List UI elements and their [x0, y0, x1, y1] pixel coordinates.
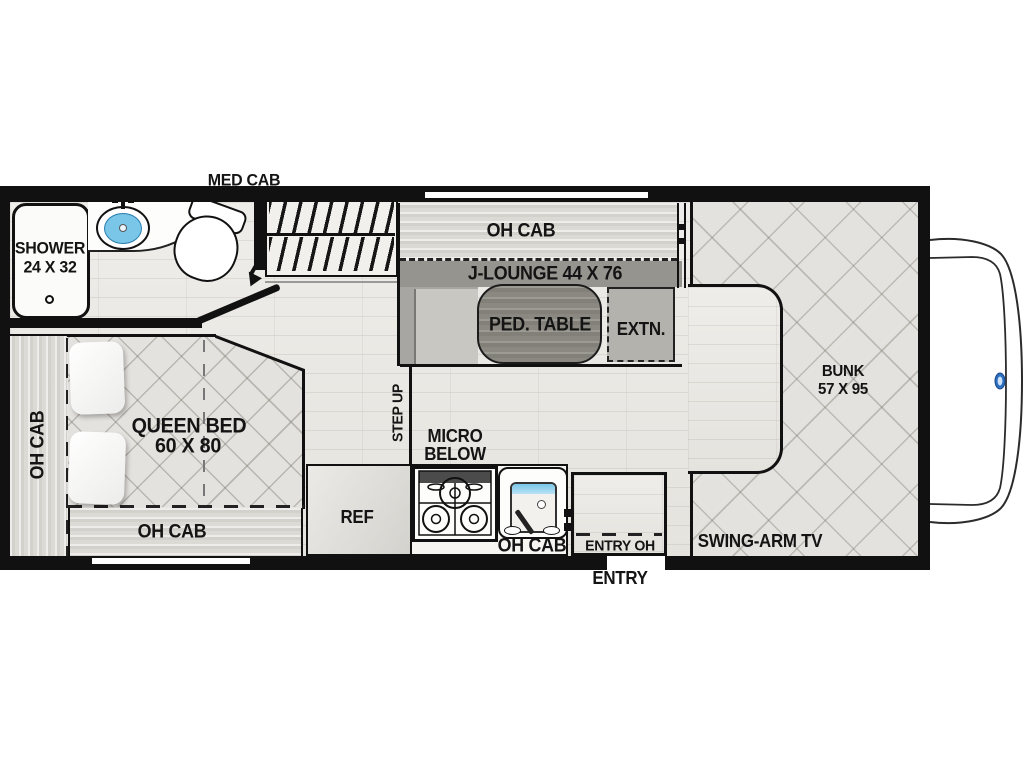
- shower-drain: [45, 295, 54, 304]
- queen-bed-label-line2: 60 X 80: [155, 436, 221, 457]
- pillow-top: [69, 341, 125, 415]
- shower-label-line1: SHOWER: [15, 240, 85, 257]
- bunk-edge-bottom: [690, 472, 693, 556]
- micro-below-label-line1: MICRO: [428, 427, 483, 445]
- bunk-label-line1: BUNK: [822, 364, 864, 380]
- extn-label: EXTN.: [617, 320, 665, 338]
- galley-sink-handle-left: [504, 526, 521, 535]
- cab-outline-outer: [930, 239, 1022, 523]
- lounge-right-line-b: [684, 203, 686, 288]
- counter-hinge-bottom: [564, 523, 571, 531]
- entry-oh-dashed: [576, 533, 662, 536]
- wardrobe-front-line: [265, 281, 398, 283]
- wall-left: [0, 186, 10, 570]
- fridge-label: REF: [340, 508, 373, 526]
- entry-oh-label: ENTRY OH: [585, 539, 655, 554]
- step-edge: [409, 366, 412, 464]
- bunk-label-line2: 57 X 95: [818, 382, 868, 398]
- galley-sink-water: [512, 484, 555, 494]
- bathroom-sink-drain: [119, 224, 127, 232]
- wardrobe-hangers-bottom: [269, 237, 394, 271]
- med-cab-label: MED CAB: [208, 172, 281, 189]
- micro-below-label-line2: BELOW: [424, 445, 486, 463]
- floorplan: BUNK 57 X 95 SWING-ARM TV SHOWER 24 X 32…: [0, 0, 1024, 768]
- entry-label: ENTRY: [592, 569, 647, 587]
- galley-sink-drain: [537, 500, 546, 509]
- window-top: [425, 192, 648, 198]
- queen-bed-label-line1: QUEEN BED: [132, 416, 247, 437]
- oh-cab-lounge-label: OH CAB: [487, 222, 556, 241]
- slide-latch-top: [679, 224, 686, 230]
- galley-sink-handle-right: [543, 526, 560, 535]
- slide-latch-bottom: [679, 238, 686, 244]
- oh-cab-foot-label: OH CAB: [138, 523, 207, 542]
- wardrobe: [265, 197, 398, 277]
- pillow-bottom: [68, 431, 126, 505]
- shower-label-line2: 24 X 32: [23, 259, 76, 276]
- lounge-bottom-line: [400, 364, 682, 367]
- lounge-right-line-a: [677, 203, 679, 288]
- bunk-notch-floor: [688, 284, 783, 474]
- swing-arm-tv-label: SWING-ARM TV: [698, 532, 822, 550]
- window-bottom: [92, 558, 250, 564]
- queen-bed-right-edge: [302, 369, 305, 509]
- wardrobe-hangers-top: [269, 199, 394, 233]
- j-lounge-seat: [414, 289, 478, 364]
- step-up-label: STEP UP: [391, 384, 406, 442]
- cooktop: [412, 466, 498, 542]
- oh-cab-galley-label: OH CAB: [498, 537, 567, 556]
- bathroom-wall: [0, 318, 202, 328]
- counter-hinge-top: [564, 509, 571, 517]
- wardrobe-rod: [267, 233, 395, 236]
- cab-front: [920, 186, 1024, 576]
- bunk-edge-top: [690, 202, 693, 286]
- j-lounge-label: J-LOUNGE 44 X 76: [468, 265, 622, 284]
- oh-cab-side-label: OH CAB: [29, 411, 48, 480]
- ped-table-label: PED. TABLE: [489, 316, 591, 335]
